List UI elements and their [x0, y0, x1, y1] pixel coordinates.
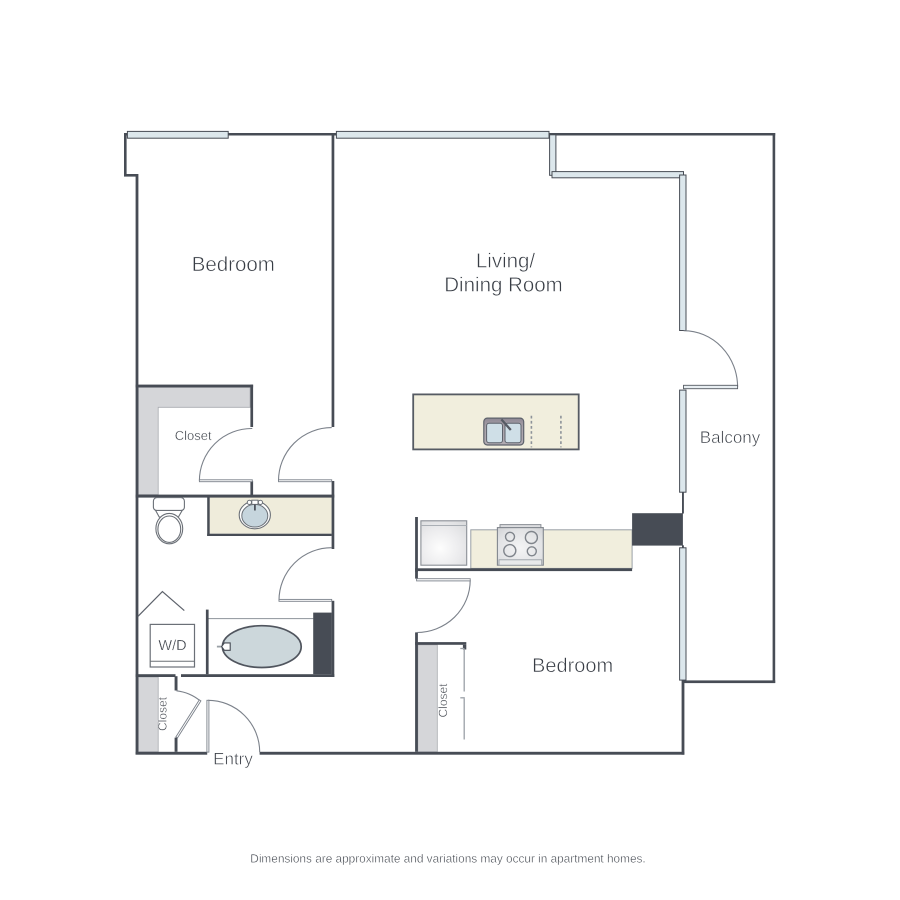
svg-text:Dimensions are approximate and: Dimensions are approximate and variation… [250, 852, 645, 866]
svg-text:Living/: Living/ [476, 250, 536, 273]
svg-text:Closet: Closet [155, 696, 169, 731]
svg-text:Entry: Entry [213, 750, 253, 769]
svg-text:Bedroom: Bedroom [192, 253, 275, 276]
svg-text:Bedroom: Bedroom [532, 655, 613, 677]
svg-text:W/D: W/D [158, 638, 186, 654]
svg-text:Closet: Closet [175, 428, 212, 443]
svg-text:Balcony: Balcony [700, 428, 761, 447]
svg-text:Closet: Closet [436, 683, 450, 718]
svg-text:Dining Room: Dining Room [444, 274, 563, 297]
